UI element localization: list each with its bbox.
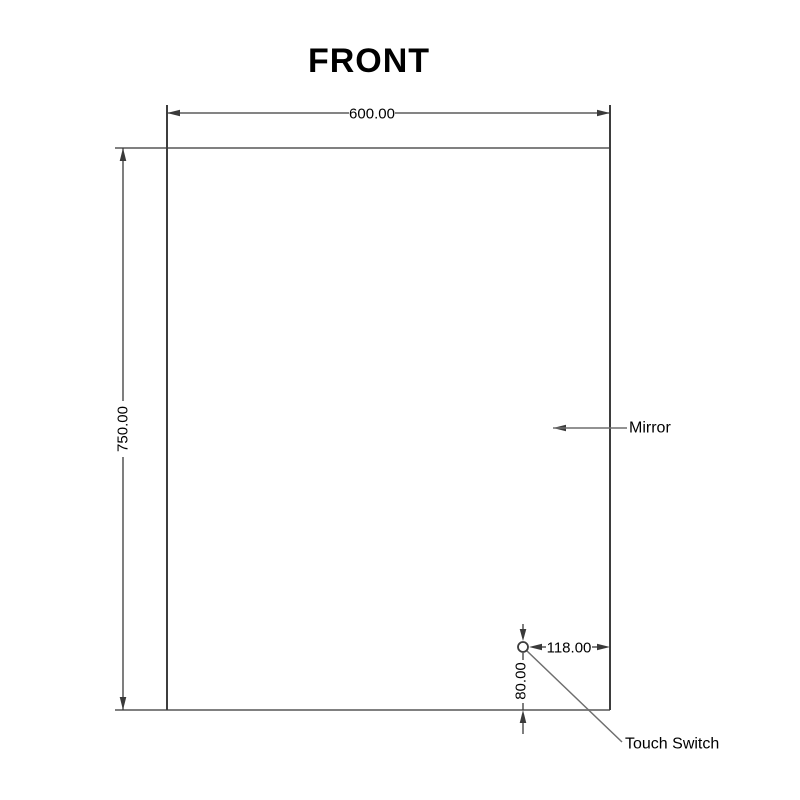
height-dim-arrow-top: [120, 148, 127, 161]
switch-offset-y-text: 80.00: [513, 662, 530, 700]
width-dimension-text: 600.00: [349, 106, 395, 123]
leader-lines: [527, 428, 627, 742]
touch-switch-circle: [518, 642, 528, 652]
switch-offset-x-text: 118.00: [547, 640, 592, 657]
drawing-canvas: FRONT: [0, 0, 800, 800]
dimension-lines: [120, 110, 610, 734]
width-dim-arrow-right: [597, 110, 610, 117]
switch-x-dim-arrow-right: [597, 644, 610, 651]
touch-switch-label: Touch Switch: [625, 736, 719, 753]
touch-switch-leader-line: [527, 651, 622, 742]
mirror-outline-horizontal: [115, 148, 610, 710]
mirror-outline-vertical: [167, 105, 610, 710]
switch-y-dim-arrow-down: [520, 629, 527, 641]
dimension-arrowheads: [120, 110, 610, 723]
mirror-label: Mirror: [629, 420, 671, 437]
switch-y-dim-arrow-up: [520, 710, 527, 723]
drawing-texts: 600.00 750.00 118.00 80.00 Mirror Touch …: [115, 106, 720, 753]
width-dim-arrow-left: [167, 110, 180, 117]
height-dimension-text: 750.00: [115, 406, 132, 452]
technical-drawing: 600.00 750.00 118.00 80.00 Mirror Touch …: [0, 0, 800, 800]
switch-x-dim-arrow-left: [529, 644, 542, 651]
height-dim-arrow-bottom: [120, 697, 127, 710]
